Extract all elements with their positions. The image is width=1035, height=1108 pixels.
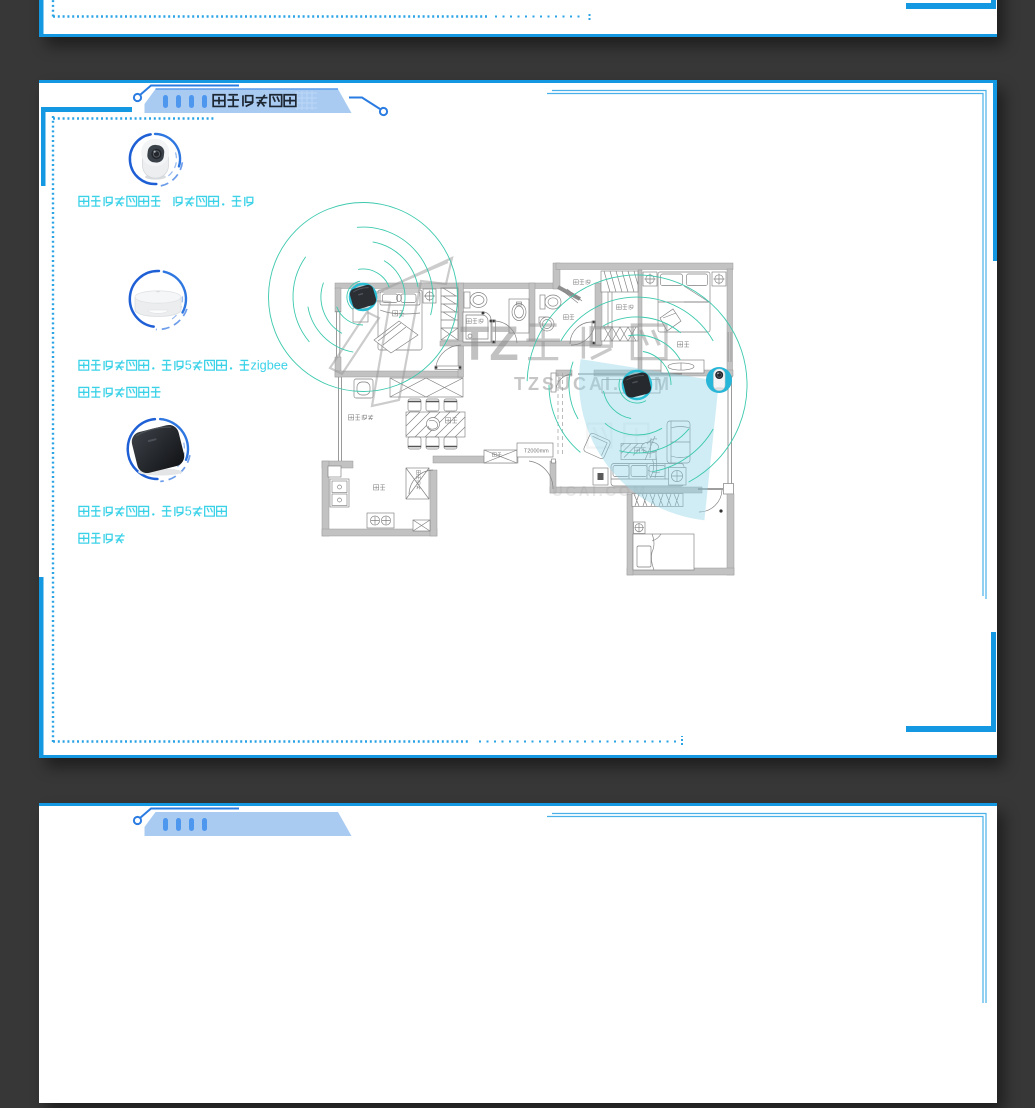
svg-text:5: 5 [185,505,192,519]
svg-text:T2000mm: T2000mm [524,449,549,455]
svg-text:TZ: TZ [460,318,519,371]
svg-text:5: 5 [185,359,192,373]
